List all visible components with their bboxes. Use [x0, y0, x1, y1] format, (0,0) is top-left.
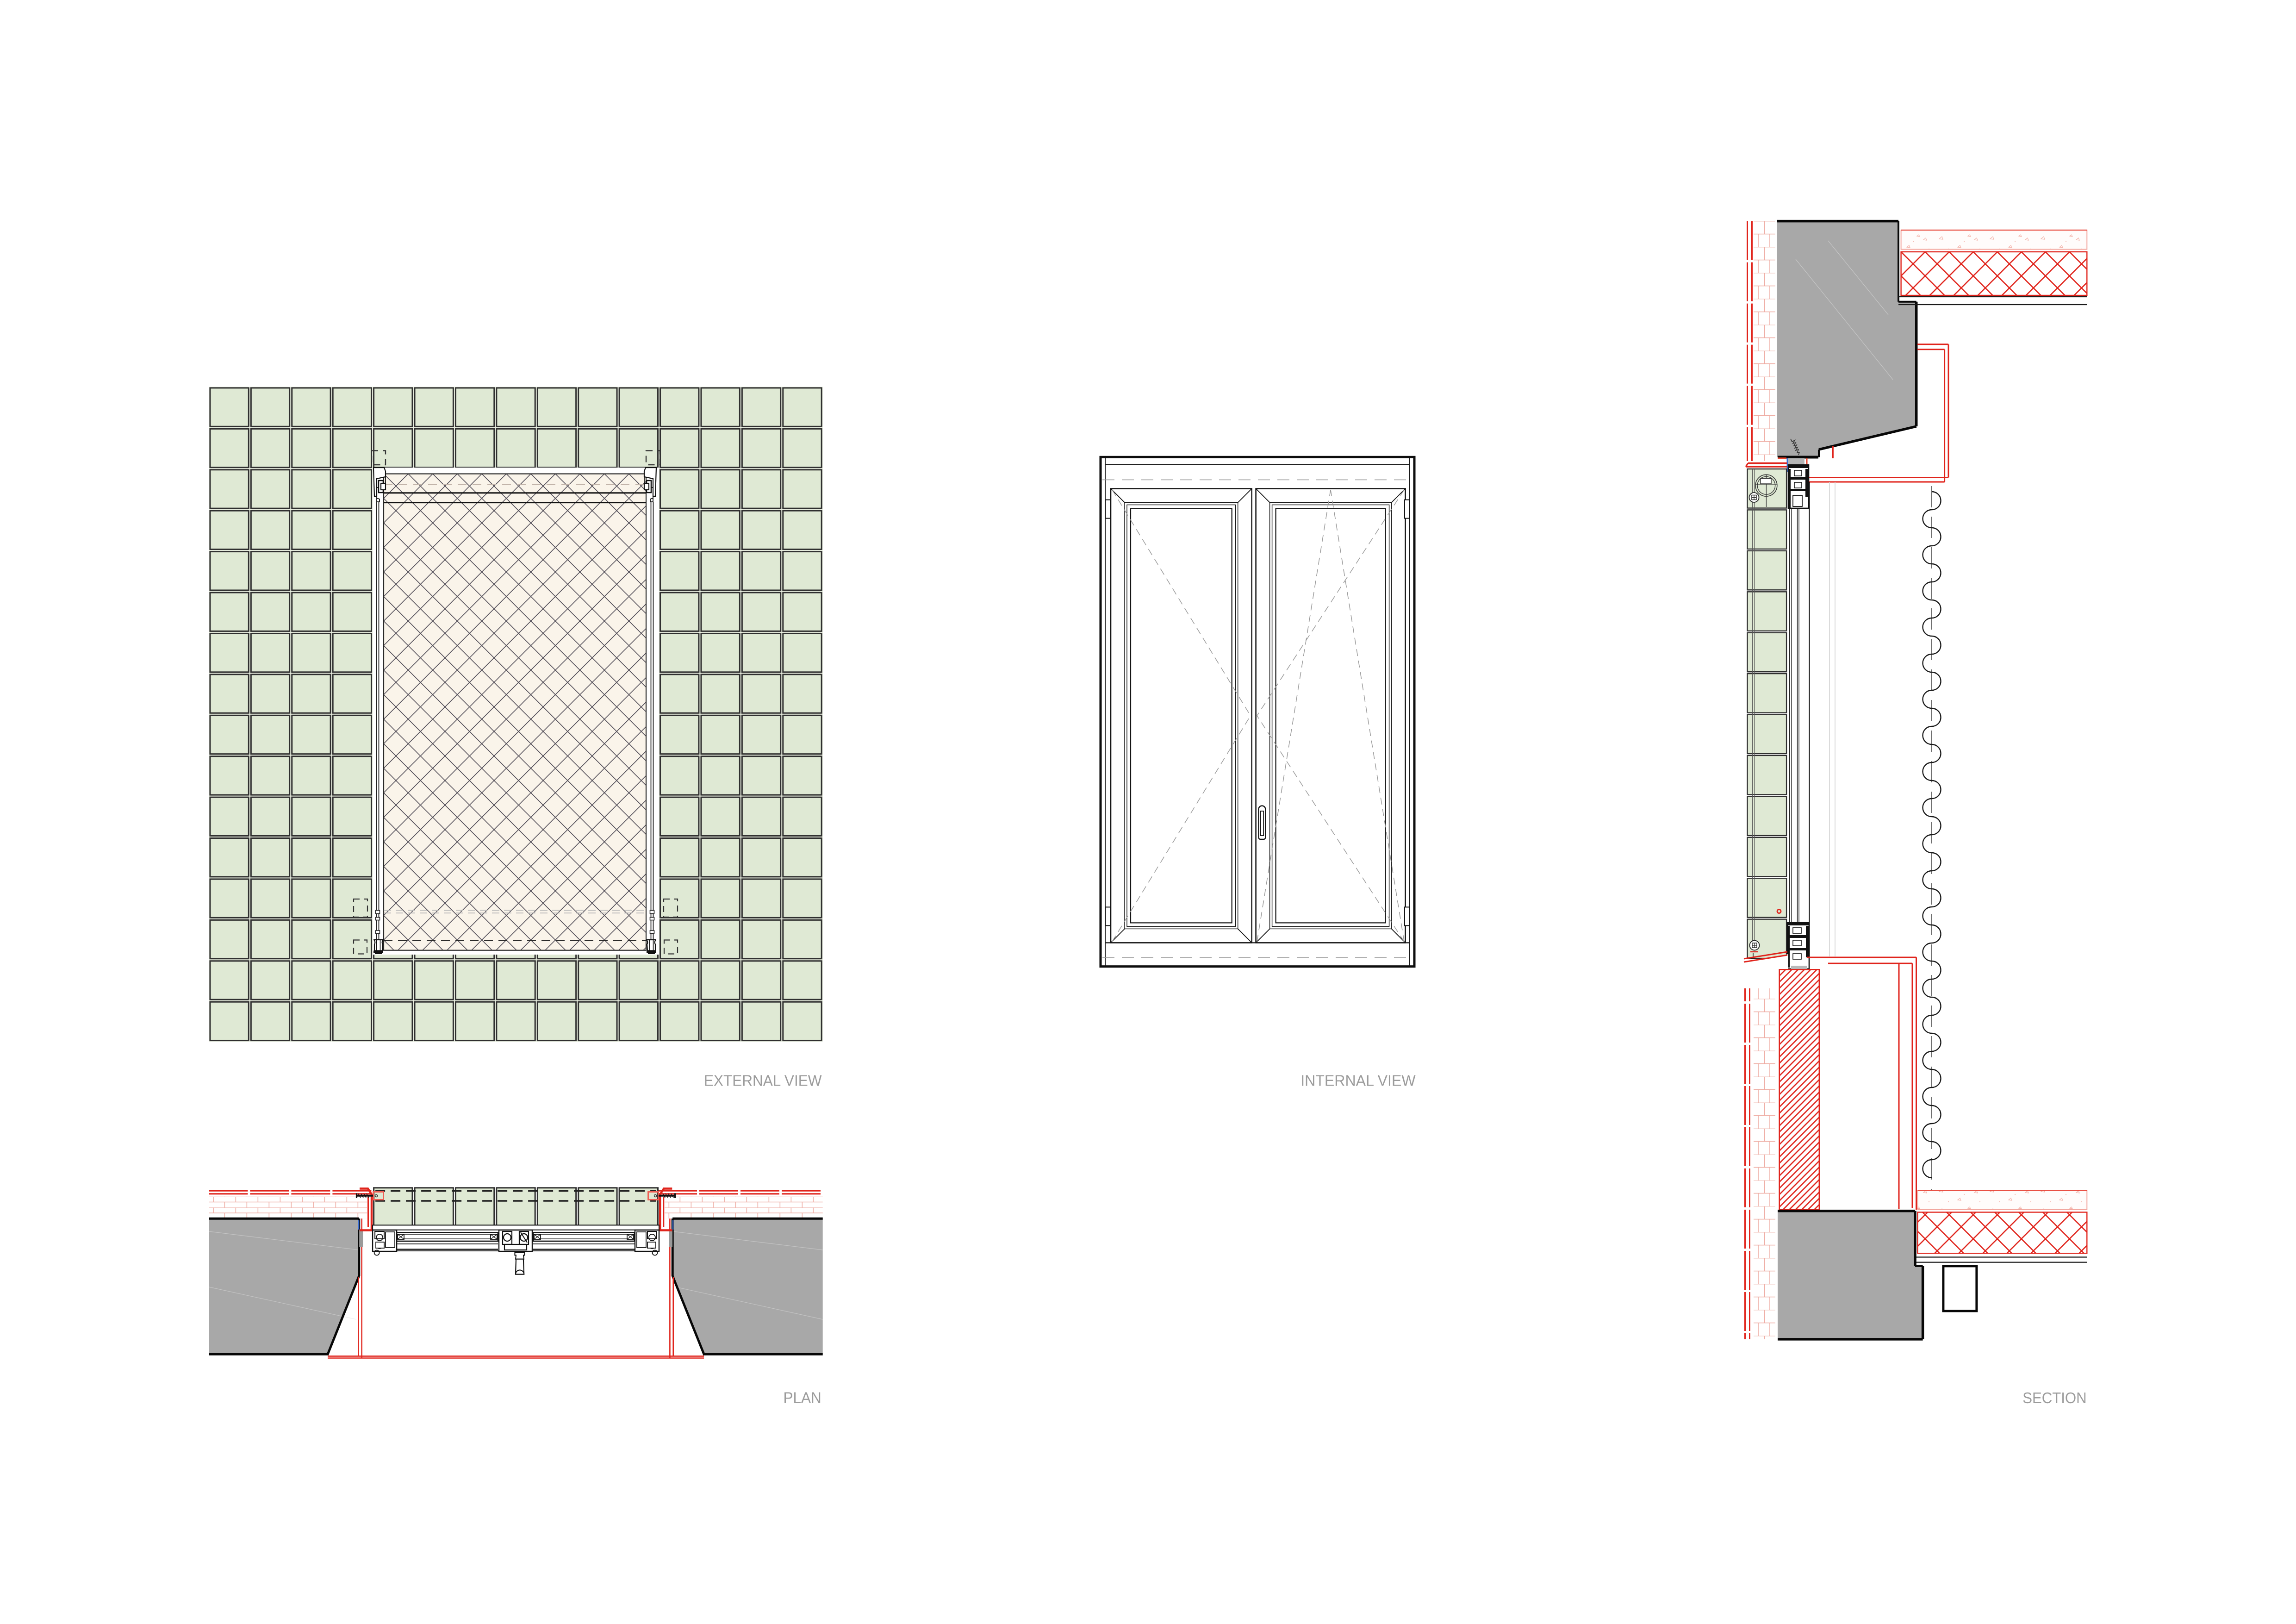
svg-text:INTERNAL VIEW: INTERNAL VIEW [1300, 1073, 1416, 1090]
svg-text:EXTERNAL VIEW: EXTERNAL VIEW [704, 1073, 822, 1090]
svg-text:PLAN: PLAN [784, 1390, 821, 1407]
svg-text:SECTION: SECTION [2022, 1390, 2086, 1407]
